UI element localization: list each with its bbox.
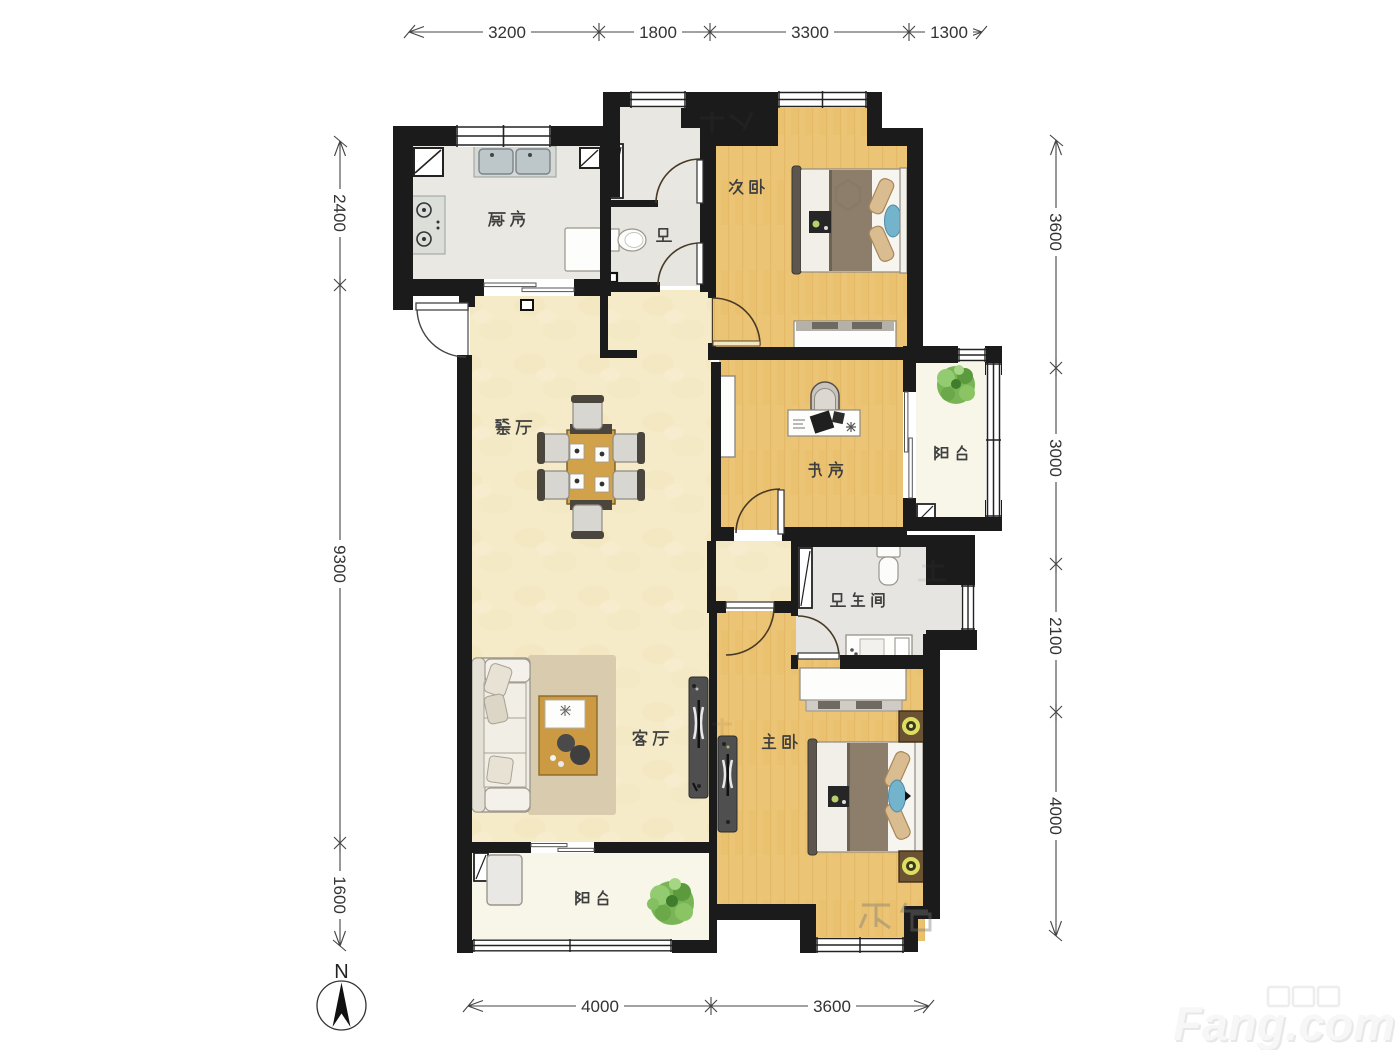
svg-text:3300: 3300 (791, 23, 829, 42)
svg-text:4000: 4000 (1046, 797, 1065, 835)
svg-text:Fang.com: Fang.com (1173, 997, 1395, 1050)
svg-text:1300: 1300 (930, 23, 968, 42)
svg-text:4000: 4000 (581, 997, 619, 1016)
svg-text:1800: 1800 (639, 23, 677, 42)
svg-text:2400: 2400 (330, 194, 349, 232)
svg-text:3200: 3200 (488, 23, 526, 42)
svg-text:N: N (334, 961, 348, 983)
svg-text:9300: 9300 (330, 545, 349, 583)
svg-text:3600: 3600 (1046, 213, 1065, 251)
svg-text:3000: 3000 (1046, 439, 1065, 477)
svg-text:1600: 1600 (330, 876, 349, 914)
svg-text:2100: 2100 (1046, 617, 1065, 655)
svg-text:3600: 3600 (813, 997, 851, 1016)
